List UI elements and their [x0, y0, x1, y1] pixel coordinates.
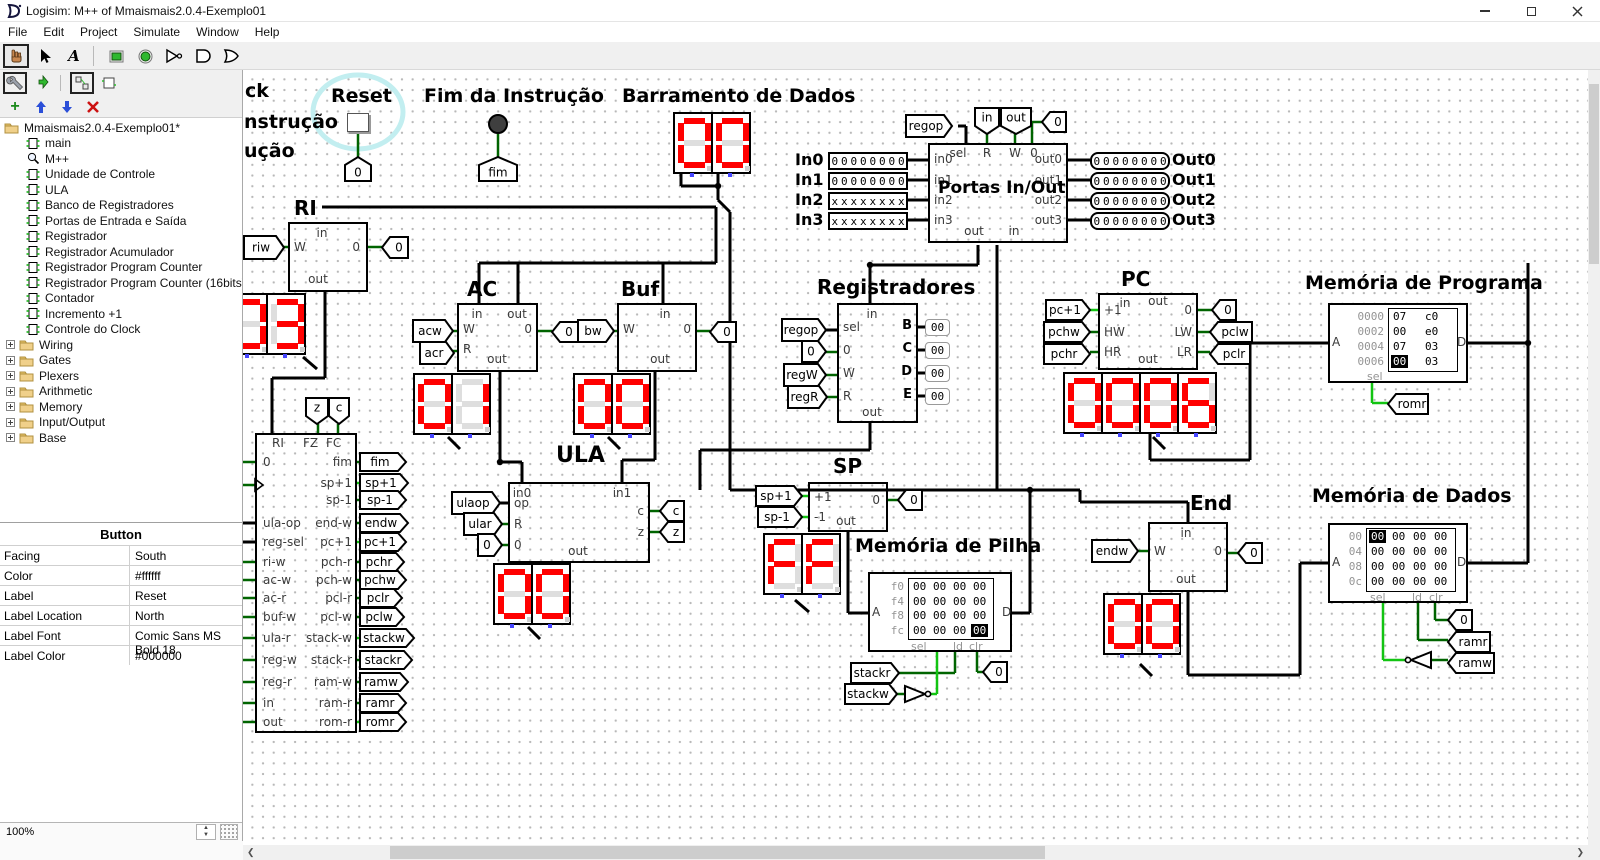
menu-file[interactable]: File: [0, 23, 35, 41]
circuit-label-u-o: ução: [244, 140, 295, 162]
tree-circuit-controle-do-clock-icon: [26, 323, 40, 336]
seven-segment-digit: [1101, 372, 1141, 434]
stack-memory-ld-label: ld: [953, 640, 963, 653]
circuit-label-buf: Buf: [621, 277, 659, 301]
seven-segment-digit: [611, 373, 651, 435]
tree-circuit-portas-de-entrada-e-sa-da[interactable]: Portas de Entrada e Saída: [26, 213, 186, 228]
svg-text:0: 0: [807, 345, 815, 359]
panel-gap: [0, 841, 243, 860]
output-out2: 00000000: [1090, 192, 1170, 210]
pin-label-c: c: [637, 504, 644, 518]
pin-label-out: out: [568, 544, 588, 558]
svg-text:ramw: ramw: [1458, 656, 1492, 670]
data-memory-clr-label: clr: [1429, 591, 1443, 604]
text-tool-icon[interactable]: A: [61, 44, 87, 68]
hex-probe-1: 00: [925, 342, 950, 359]
program-memory-cell: 07: [1391, 340, 1408, 353]
vertical-scrollbar[interactable]: [1588, 70, 1600, 845]
tree-circuit-registrador-program-counter-icon: [26, 261, 40, 274]
pin-label-stack-r: stack-r: [311, 653, 352, 667]
display-pin-dot: [690, 173, 694, 177]
data-memory-address: 00: [1349, 530, 1362, 543]
svg-text:pchw: pchw: [364, 573, 396, 587]
data-memory-address: 0c: [1349, 575, 1362, 588]
tree-library-memory[interactable]: Memory: [6, 399, 82, 414]
pin-label-out: out: [1138, 352, 1158, 366]
tree-root[interactable]: Mmaismais2.0.4-Exemplo01*: [4, 120, 180, 135]
display-pin-dot: [510, 624, 514, 628]
data-memory-address: 08: [1349, 560, 1362, 573]
tree-circuit-registrador-program-counter-16bits-[interactable]: Registrador Program Counter (16bits): [26, 275, 242, 290]
attribute-value[interactable]: Comic Sans MS Bold 18: [130, 626, 242, 645]
circuit-label-in2: In2: [795, 190, 823, 209]
fim-led: [488, 114, 508, 134]
pin-label-out: out: [1148, 294, 1168, 308]
attribute-value[interactable]: North: [130, 606, 242, 625]
seven-segment-digit: [1141, 593, 1181, 655]
circuit-label-sp: SP: [833, 454, 862, 478]
attribute-row-facing[interactable]: FacingSouth: [0, 545, 242, 565]
pin-label-in: in: [317, 226, 328, 240]
tree-library-gates[interactable]: Gates: [6, 353, 71, 368]
input-in3[interactable]: xxxxxxxx: [828, 212, 908, 230]
attribute-row-label-font[interactable]: Label FontComic Sans MS Bold 18: [0, 625, 242, 645]
minimize-button[interactable]: [1462, 0, 1508, 22]
pin-label-0: 0: [524, 322, 532, 336]
pin-label-FC: FC: [326, 436, 341, 450]
seven-segment-digit: [573, 373, 613, 435]
remove-circuit-icon[interactable]: [82, 98, 104, 116]
svg-text:c: c: [673, 504, 680, 518]
display-ula: [493, 563, 571, 625]
pin-label-W: W: [1009, 146, 1021, 160]
pin-label-HR: HR: [1104, 345, 1121, 359]
pin-label-out: out: [308, 272, 328, 286]
scroll-left-icon[interactable]: ❮: [247, 847, 255, 858]
svg-text:0: 0: [910, 493, 918, 507]
program-memory-cell: 00: [1391, 325, 1408, 338]
display-pin-dot: [1158, 654, 1162, 658]
pin-label-0: 0: [263, 455, 271, 469]
tree-library-plexers[interactable]: Plexers: [6, 368, 79, 383]
svg-text:0: 0: [1054, 115, 1062, 129]
display-pin-dot: [818, 594, 822, 598]
project-toolbar: +: [0, 96, 242, 118]
main-toolbar: A: [0, 42, 1600, 70]
pin-label-R: R: [843, 389, 851, 403]
stack-memory-sel-label: sel: [911, 640, 927, 653]
tree-circuit-incremento-1[interactable]: Incremento +1: [26, 306, 122, 321]
svg-text:0: 0: [354, 166, 362, 180]
tree-circuit-contador[interactable]: Contador: [26, 291, 94, 306]
horizontal-scrollbar-thumb[interactable]: [390, 846, 1045, 859]
svg-text:out: out: [1006, 111, 1026, 125]
pin-label-0: 0: [352, 240, 360, 254]
tree-circuit-main-icon: [26, 137, 40, 150]
circuit-label-ac: AC: [467, 277, 497, 301]
svg-text:0: 0: [995, 665, 1003, 679]
svg-text:sp-1: sp-1: [367, 493, 393, 507]
pin-label-in: in: [263, 696, 274, 710]
stack-memory-cell: 00: [951, 624, 968, 637]
pin-label-out3: out3: [1035, 213, 1062, 227]
data-memory-address: 04: [1349, 545, 1362, 558]
pin-label-sp-1: sp-1: [326, 493, 352, 507]
tree-circuit-registrador-icon: [26, 230, 40, 243]
and-gate-tool-icon[interactable]: [190, 44, 216, 68]
pin-label-rom-r: rom-r: [319, 715, 352, 729]
stack-memory-cell: 00: [911, 580, 928, 593]
pin-label-out: out: [507, 307, 527, 321]
attribute-row-label-location[interactable]: Label LocationNorth: [0, 605, 242, 625]
grid-toggle-button[interactable]: [220, 824, 238, 840]
data-memory-cell: 00: [1432, 530, 1449, 543]
input-in2[interactable]: xxxxxxxx: [828, 192, 908, 210]
svg-text:pclw: pclw: [1221, 325, 1249, 339]
zoom-spinner[interactable]: ▲▼: [196, 824, 216, 840]
appearance-view-icon[interactable]: [97, 72, 121, 94]
pin-label-W: W: [294, 240, 306, 254]
tree-circuit-main[interactable]: main: [26, 136, 71, 151]
pin-label-out: out: [650, 352, 670, 366]
data-memory-addr-pin: A: [1332, 555, 1340, 569]
stack-memory-clr-label: clr: [969, 640, 983, 653]
tree-library-base-icon: [19, 431, 34, 444]
stack-memory-address: f4: [891, 595, 904, 608]
display-pin-dot: [245, 354, 249, 358]
circuit-label-out0: Out0: [1172, 150, 1216, 169]
circuit-label-registradores: Registradores: [817, 275, 975, 299]
svg-text:ulaop: ulaop: [456, 496, 489, 510]
pin-label-pc+1: pc+1: [320, 535, 352, 549]
pin-label-E: E: [903, 387, 912, 402]
seven-segment-digit: [1139, 372, 1179, 434]
tree-circuit-registrador-acumulador[interactable]: Registrador Acumulador: [26, 244, 174, 259]
pin-label-C: C: [902, 341, 912, 356]
edit-tool-icon[interactable]: [32, 44, 58, 68]
svg-text:ramr: ramr: [366, 696, 395, 710]
tree-circuit-banco-de-registradores[interactable]: Banco de Registradores: [26, 198, 174, 213]
svg-text:stackr: stackr: [365, 653, 402, 667]
display-buf: [573, 373, 651, 435]
pin-label-LW: LW: [1175, 325, 1192, 339]
svg-text:sp+1: sp+1: [365, 476, 397, 490]
pin-label-W: W: [623, 322, 635, 336]
pin-label-in: in: [1181, 526, 1192, 540]
pin-label-HW: HW: [1104, 325, 1125, 339]
data-memory-cell: 00: [1369, 560, 1386, 573]
stack-memory-data-pin: D: [1002, 605, 1011, 619]
schematic-canvas[interactable]: riw0acwacr0bw0regop0regWregRpc+1pchwpchr…: [243, 70, 1588, 845]
logisim-logo-icon: [6, 3, 22, 24]
attribute-row-label[interactable]: LabelReset: [0, 585, 242, 605]
window-title: Logisim: M++ of Mmaismais2.0.4-Exemplo01: [26, 4, 266, 18]
svg-text:z: z: [314, 401, 320, 415]
attribute-value[interactable]: South: [130, 546, 242, 565]
tree-library-memory-icon: [19, 400, 34, 413]
stack-memory-addr-pin: A: [872, 605, 880, 619]
svg-text:pc+1: pc+1: [1049, 303, 1081, 317]
explorer-toolbar: [0, 70, 242, 96]
pin-label-D: D: [901, 364, 912, 379]
svg-text:stackw: stackw: [847, 687, 889, 701]
stack-memory-cell: 00: [971, 624, 988, 637]
attribute-title: Button: [0, 523, 242, 545]
display-pin-dot: [628, 434, 632, 438]
svg-text:0: 0: [723, 325, 731, 339]
seven-segment-digit: [711, 112, 751, 174]
seven-segment-digit: [243, 293, 268, 355]
pin-label-out0: out0: [1035, 152, 1062, 166]
output-out3: 00000000: [1090, 212, 1170, 230]
pin-label-in1: in1: [613, 486, 632, 500]
pin-label-ac-w: ac-w: [263, 573, 291, 587]
program-memory-address: 0004: [1358, 340, 1385, 353]
svg-text:regop: regop: [909, 119, 944, 133]
seven-segment-digit: [1063, 372, 1103, 434]
display-pin-dot: [1194, 433, 1198, 437]
svg-text:endw: endw: [1096, 544, 1129, 558]
not-gate-tool-icon[interactable]: [161, 44, 187, 68]
pin-label-W: W: [1154, 544, 1166, 558]
tree-circuit-registrador[interactable]: Registrador: [26, 229, 107, 244]
attribute-key: Label Location: [0, 606, 130, 625]
pin-label-pcl-r: pcl-r: [325, 591, 352, 605]
scrollbar-corner: [1588, 845, 1600, 860]
menu-project[interactable]: Project: [72, 23, 125, 41]
program-memory-sel-label: sel: [1367, 370, 1383, 383]
pin-label-stack-w: stack-w: [306, 631, 352, 645]
svg-text:acw: acw: [418, 324, 442, 338]
tree-circuit-ula[interactable]: ULA: [26, 182, 68, 197]
pin-label-out: out: [1176, 572, 1196, 586]
tree-circuit-banco-de-registradores-icon: [26, 199, 40, 212]
tree-library-wiring[interactable]: Wiring: [6, 337, 73, 352]
pin-label-+1: +1: [1104, 303, 1122, 317]
data-memory-cell: 00: [1369, 545, 1386, 558]
data-memory-cell: 00: [1390, 560, 1407, 573]
pin-label-0: 0: [683, 322, 691, 336]
horizontal-scrollbar[interactable]: ❮ ❯: [243, 845, 1588, 860]
attribute-row-color[interactable]: Color#ffffff: [0, 565, 242, 585]
input-pin-tool-icon[interactable]: [103, 44, 129, 68]
svg-text:pc+1: pc+1: [364, 535, 396, 549]
move-up-icon[interactable]: [30, 98, 52, 116]
svg-text:0: 0: [483, 538, 491, 552]
svg-text:endw: endw: [365, 516, 398, 530]
attribute-value[interactable]: Reset: [130, 586, 242, 605]
pin-label-in: in: [660, 307, 671, 321]
circuit-label-nstru-o: nstrução: [244, 111, 338, 133]
seven-segment-digit: [493, 563, 533, 625]
circuit-label-mem-ria-de-dados: Memória de Dados: [1312, 485, 1512, 507]
vertical-scrollbar-thumb[interactable]: [1589, 84, 1599, 264]
close-button[interactable]: [1554, 0, 1600, 22]
toolbar-separator: [60, 75, 61, 91]
program-memory-cell: 00: [1391, 355, 1408, 368]
svg-text:0: 0: [1460, 613, 1468, 627]
svg-text:regop: regop: [784, 323, 819, 337]
pin-label-out: out: [862, 405, 882, 419]
svg-text:regW: regW: [786, 368, 818, 382]
pin-label-out: out: [964, 224, 984, 238]
tree-circuit-registrador-acumulador-icon: [26, 245, 40, 258]
toolbox-view-icon[interactable]: [3, 72, 27, 94]
attribute-value[interactable]: #000000: [130, 646, 242, 665]
stack-memory-cell: 00: [971, 595, 988, 608]
display-pin-dot: [283, 354, 287, 358]
output-out1: 00000000: [1090, 172, 1170, 190]
attribute-key: Label: [0, 586, 130, 605]
maximize-button[interactable]: [1508, 0, 1554, 22]
tree-circuit-contador-icon: [26, 292, 40, 305]
data-memory-cell: 00: [1411, 560, 1428, 573]
display-pin-dot: [548, 624, 552, 628]
pin-label-0: 0: [872, 493, 880, 507]
svg-text:pchr: pchr: [366, 555, 393, 569]
program-memory-cell: 03: [1423, 355, 1440, 368]
display-pin-dot: [1120, 654, 1124, 658]
pin-label-out: out: [836, 514, 856, 528]
display-ri: [243, 293, 306, 355]
data-memory-cell: 00: [1390, 575, 1407, 588]
tree-circuit-registrador-program-counter-16bits--icon: [26, 276, 40, 289]
tree-circuit-registrador-program-counter[interactable]: Registrador Program Counter: [26, 260, 202, 275]
menu-edit[interactable]: Edit: [35, 23, 72, 41]
pin-label-B: B: [902, 318, 912, 333]
svg-text:sp-1: sp-1: [764, 510, 790, 524]
pin-label-in: in: [472, 307, 483, 321]
output-pin-tool-icon[interactable]: [132, 44, 158, 68]
attribute-value[interactable]: #ffffff: [130, 566, 242, 585]
data-memory-cell: 00: [1411, 545, 1428, 558]
circuit-label-in0: In0: [795, 150, 823, 169]
add-circuit-icon[interactable]: +: [4, 98, 26, 116]
move-down-icon[interactable]: [56, 98, 78, 116]
svg-text:romr: romr: [1398, 397, 1427, 411]
menu-window[interactable]: Window: [188, 23, 247, 41]
hex-probe-2: 00: [925, 365, 950, 382]
pin-label-reg-w: reg-w: [263, 653, 297, 667]
pin-label-in0: in0: [934, 152, 953, 166]
seven-segment-digit: [673, 112, 713, 174]
data-memory-cell: 00: [1432, 560, 1449, 573]
stack-memory-cell: 00: [931, 624, 948, 637]
svg-text:fim: fim: [370, 455, 389, 469]
tree-root-icon: [4, 121, 19, 134]
seven-segment-digit: [1177, 372, 1217, 434]
circuit-label-out2: Out2: [1172, 190, 1216, 209]
tree-library-base[interactable]: Base: [6, 430, 66, 445]
simulation-view-icon[interactable]: [30, 72, 54, 94]
data-memory-cell: 00: [1369, 575, 1386, 588]
menu-simulate[interactable]: Simulate: [125, 23, 188, 41]
pin-label-in: in: [867, 307, 878, 321]
menu-help[interactable]: Help: [247, 23, 288, 41]
poke-tool-icon[interactable]: [3, 44, 29, 68]
pin-label-op: op: [514, 496, 529, 510]
pin-label-end-w: end-w: [315, 516, 352, 530]
layout-view-icon[interactable]: [70, 72, 94, 94]
attribute-row-label-color[interactable]: Label Color#000000: [0, 645, 242, 665]
program-memory-address: 0000: [1358, 310, 1385, 323]
program-memory-addr-pin: A: [1332, 335, 1340, 349]
pin-label-z: z: [638, 525, 644, 539]
seven-segment-digit: [451, 373, 491, 435]
attribute-key: Label Font: [0, 626, 130, 645]
tree-library-input-output-icon: [19, 416, 34, 429]
pin-label-FZ: FZ: [303, 436, 318, 450]
tree-circuit-unidade-de-controle[interactable]: Unidade de Controle: [26, 167, 155, 182]
svg-text:in: in: [982, 111, 993, 125]
svg-text:pchr: pchr: [1051, 347, 1078, 361]
pin-label-W: W: [463, 322, 475, 336]
svg-text:sp+1: sp+1: [760, 489, 792, 503]
stack-memory-address: f0: [891, 580, 904, 593]
circuit-label-in3: In3: [795, 210, 823, 229]
display-pin-dot: [1080, 433, 1084, 437]
input-in0[interactable]: 00000000: [828, 152, 908, 170]
display-pin-dot: [430, 434, 434, 438]
pin-label-pch-r: pch-r: [321, 555, 352, 569]
circuit-label-reset: Reset: [331, 85, 392, 107]
ports-in-out-title: Portas In/Out: [938, 178, 1065, 198]
pin-label-in: in: [1009, 224, 1020, 238]
tree-library-arithmetic[interactable]: Arithmetic: [6, 384, 92, 399]
pin-label-ula-op: ula-op: [263, 516, 301, 530]
tree-library-input-output[interactable]: Input/Output: [6, 415, 105, 430]
pin-label-0: 0: [1214, 544, 1222, 558]
circuit-label-ri: RI: [294, 196, 317, 220]
program-memory-address: 0006: [1358, 355, 1385, 368]
stack-memory-cell: 00: [951, 580, 968, 593]
svg-text:0: 0: [395, 241, 403, 255]
circuit-label-end: End: [1190, 491, 1232, 515]
display-ac: [413, 373, 491, 435]
stack-memory-cell: 00: [911, 609, 928, 622]
data-memory-cell: 00: [1432, 545, 1449, 558]
circuit-label-ula: ULA: [556, 443, 605, 468]
pin-label-fim: fim: [333, 455, 352, 469]
tree-library-wiring-icon: [19, 338, 34, 351]
tree-circuit-controle-do-clock[interactable]: Controle do Clock: [26, 322, 140, 337]
circuit-label-out3: Out3: [1172, 210, 1216, 229]
pin-label-ri-w: ri-w: [263, 555, 285, 569]
seven-segment-digit: [413, 373, 453, 435]
stack-memory-cell: 00: [931, 609, 948, 622]
pin-label--1: -1: [814, 510, 826, 524]
scroll-right-icon[interactable]: ❯: [1576, 847, 1584, 858]
seven-segment-digit: [801, 533, 841, 595]
pin-label-reg-sel: reg-sel: [263, 535, 304, 549]
data-memory-cell: 00: [1432, 575, 1449, 588]
menu-bar: File Edit Project Simulate Window Help: [0, 22, 1600, 42]
svg-text:0: 0: [1224, 303, 1232, 317]
svg-text:pclr: pclr: [367, 591, 390, 605]
reset-button[interactable]: [347, 113, 369, 132]
tree-circuit-ula-icon: [26, 183, 40, 196]
tree-circuit-m-[interactable]: M++: [26, 151, 69, 166]
stack-memory-address: f8: [891, 609, 904, 622]
input-in1[interactable]: 00000000: [828, 172, 908, 190]
data-memory-cell: 00: [1369, 530, 1386, 543]
pin-label-pch-w: pch-w: [316, 573, 352, 587]
svg-text:c: c: [336, 401, 343, 415]
circuit-label-mem-ria-de-pilha: Memória de Pilha: [855, 535, 1041, 557]
display-pin-dot: [1118, 433, 1122, 437]
or-gate-tool-icon[interactable]: [219, 44, 245, 68]
circuit-label-pc: PC: [1121, 267, 1150, 291]
